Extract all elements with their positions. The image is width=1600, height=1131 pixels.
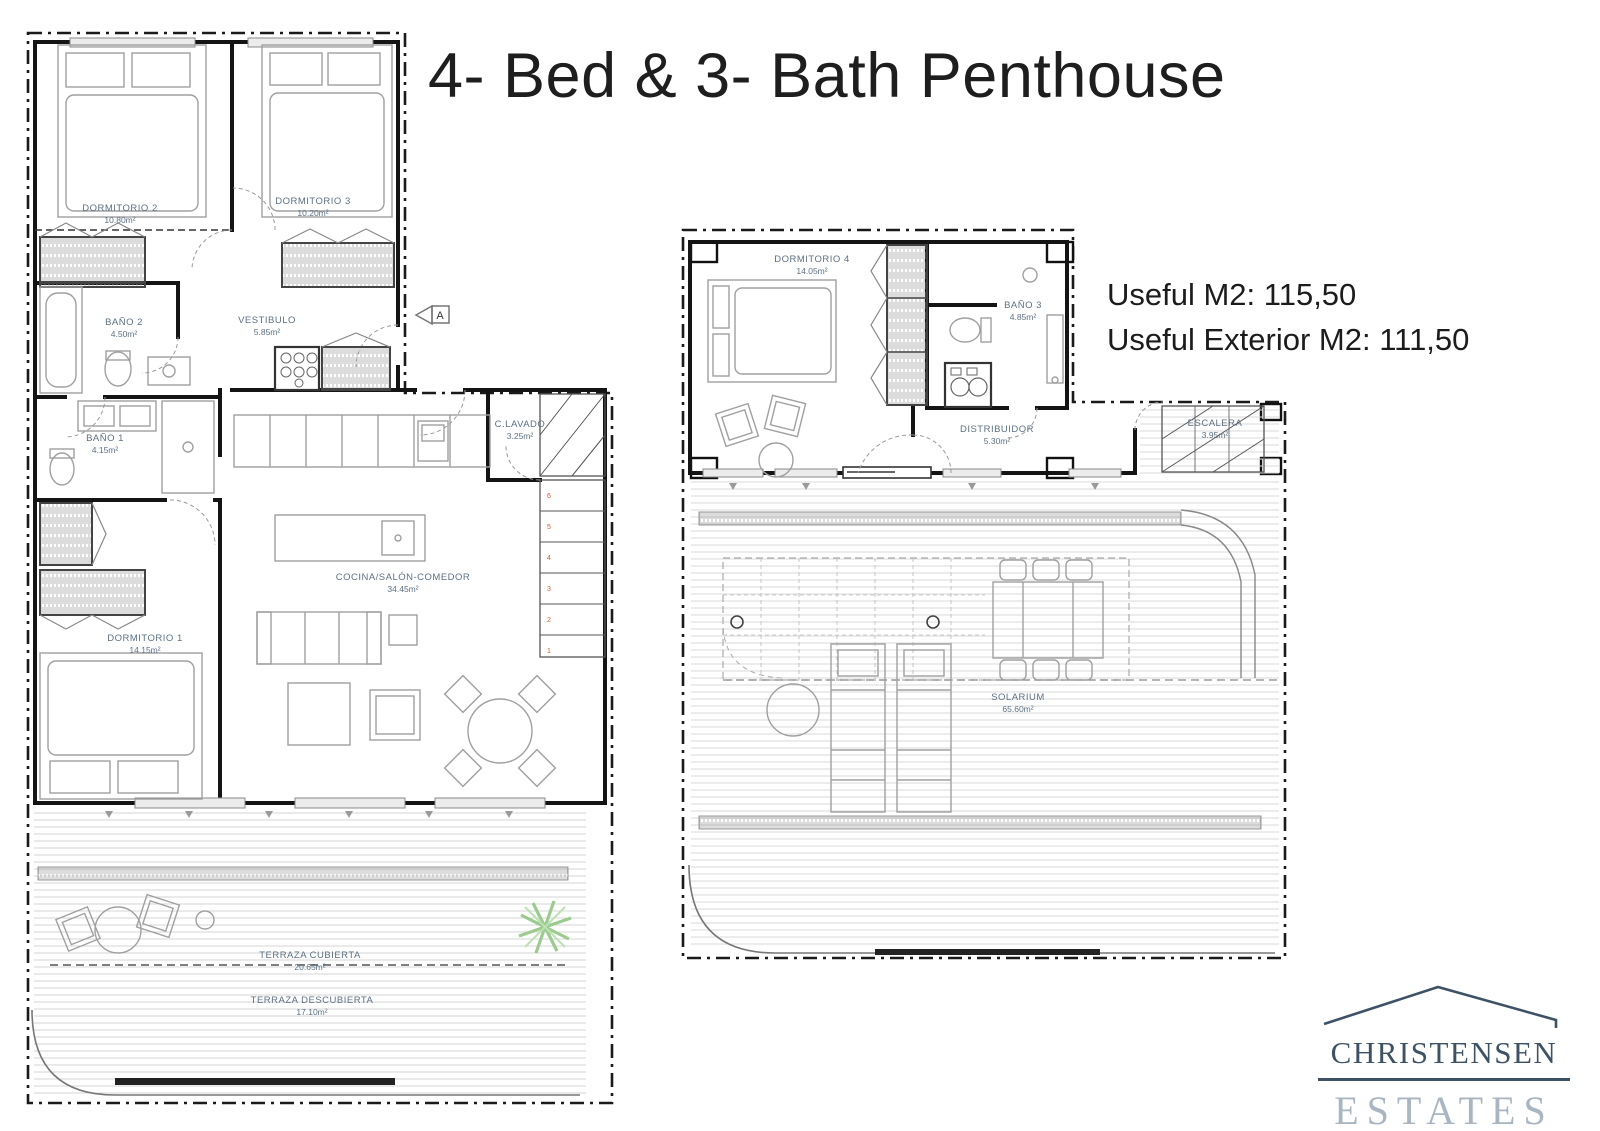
room-label-escalera: ESCALERA	[1188, 418, 1243, 429]
room-label-bano-3: BAÑO 3	[1004, 300, 1042, 311]
room-area-escalera: 3.95m²	[1202, 430, 1229, 440]
room-area-dormitorio-3: 10.20m²	[297, 208, 328, 218]
room-area-dormitorio-4: 14.05m²	[796, 266, 827, 276]
brand-logo: CHRISTENSEN ESTATES	[1318, 980, 1570, 1131]
plant-icon	[519, 901, 571, 953]
stair-number: 6	[547, 493, 551, 500]
room-label-bano-1: BAÑO 1	[86, 433, 124, 444]
room-label-terraza-descubierta: TERRAZA DESCUBIERTA	[251, 995, 374, 1006]
floorplan-lower: 1 2 3 4 5 6 A	[20, 25, 620, 1110]
room-label-dormitorio-3: DORMITORIO 3	[275, 196, 351, 207]
room-area-distribuidor: 5.30m²	[984, 436, 1011, 446]
entrance-marker-icon: A	[416, 306, 449, 324]
terrace-bottom-wall	[115, 1078, 395, 1085]
stove-icon	[275, 347, 319, 390]
boundary-line-lower	[28, 33, 612, 1103]
room-area-bano-2: 4.50m²	[111, 329, 138, 339]
room-area-vestibulo: 5.85m²	[254, 327, 281, 337]
room-area-bano-3: 4.85m²	[1010, 312, 1037, 322]
room-label-cocina: COCINA/SALÓN-COMEDOR	[336, 572, 471, 583]
room-label-lavado: C.LAVADO	[495, 419, 546, 430]
logo-roof-icon	[1318, 980, 1570, 1028]
room-area-dormitorio-2: 10.80m²	[104, 215, 135, 225]
room-area-terraza-cubierta: 20.65m²	[294, 962, 325, 972]
washer-icon	[945, 363, 991, 407]
solarium-railing-bottom	[699, 816, 1261, 829]
stair-number: 5	[547, 524, 551, 531]
wardrobe-dorm4	[871, 245, 927, 405]
entrance-marker-label: A	[436, 310, 444, 322]
page: 4- Bed & 3- Bath Penthouse Useful M2: 11…	[0, 0, 1600, 1131]
solarium-bottom-wall	[875, 949, 1100, 955]
room-area-cocina: 34.45m²	[387, 584, 418, 594]
solarium-railing-top	[699, 512, 1181, 525]
room-label-solarium: SOLARIUM	[991, 692, 1045, 703]
terrace-railing	[38, 867, 568, 880]
solarium-deck-lines	[691, 482, 1279, 944]
door-arcs-upper	[858, 402, 1163, 473]
room-area-lavado: 3.25m²	[507, 431, 534, 441]
room-label-vestibulo: VESTIBULO	[238, 315, 296, 326]
stair-number: 4	[547, 555, 551, 562]
room-label-dormitorio-4: DORMITORIO 4	[774, 254, 850, 265]
room-label-bano-2: BAÑO 2	[105, 317, 143, 328]
floorplan-upper: DORMITORIO 4 14.05m² BAÑO 3 4.85m² DISTR…	[675, 220, 1295, 965]
room-label-dormitorio-1: DORMITORIO 1	[107, 633, 183, 644]
logo-name: CHRISTENSEN	[1318, 1035, 1570, 1081]
furniture-lower	[40, 45, 555, 799]
solarium-furniture	[767, 560, 1103, 812]
room-area-terraza-descubierta: 17.10m²	[296, 1007, 327, 1017]
stair-number: 3	[547, 586, 551, 593]
stair-number: 2	[547, 617, 551, 624]
room-label-dormitorio-2: DORMITORIO 2	[82, 203, 158, 214]
stair-number: 1	[547, 648, 551, 655]
room-label-terraza-cubierta: TERRAZA CUBIERTA	[259, 950, 361, 961]
room-label-distribuidor: DISTRIBUIDOR	[960, 424, 1034, 435]
room-area-bano-1: 4.15m²	[92, 445, 119, 455]
terrace-furniture	[56, 895, 214, 953]
room-area-dormitorio-1: 14.15m²	[129, 645, 160, 655]
logo-type: ESTATES	[1318, 1087, 1570, 1131]
room-area-solarium: 65.60m²	[1002, 704, 1033, 714]
